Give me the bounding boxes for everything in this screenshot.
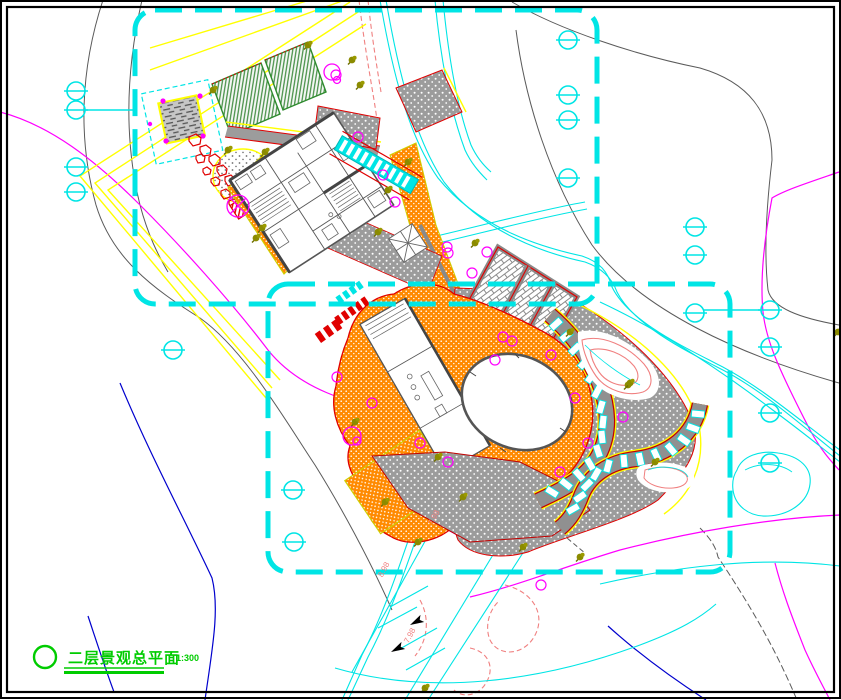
elevation-label: 8.98 [376,560,392,578]
title-bubble-icon [34,646,56,668]
cad-viewport: 7.98 8.98 7.98 二层景观总平面 1:300 [0,0,841,700]
drawing-title: 二层景观总平面 [68,649,180,667]
lower-complex [334,247,705,556]
planting-beds [212,42,326,135]
drawing-scale: 1:300 [176,653,199,663]
upper-terrace-east [396,70,462,132]
elevation-label: 7.98 [402,626,418,644]
title-block: 二层景观总平面 1:300 [34,646,199,673]
site-plan-drawing: 7.98 8.98 7.98 二层景观总平面 1:300 [0,0,841,700]
